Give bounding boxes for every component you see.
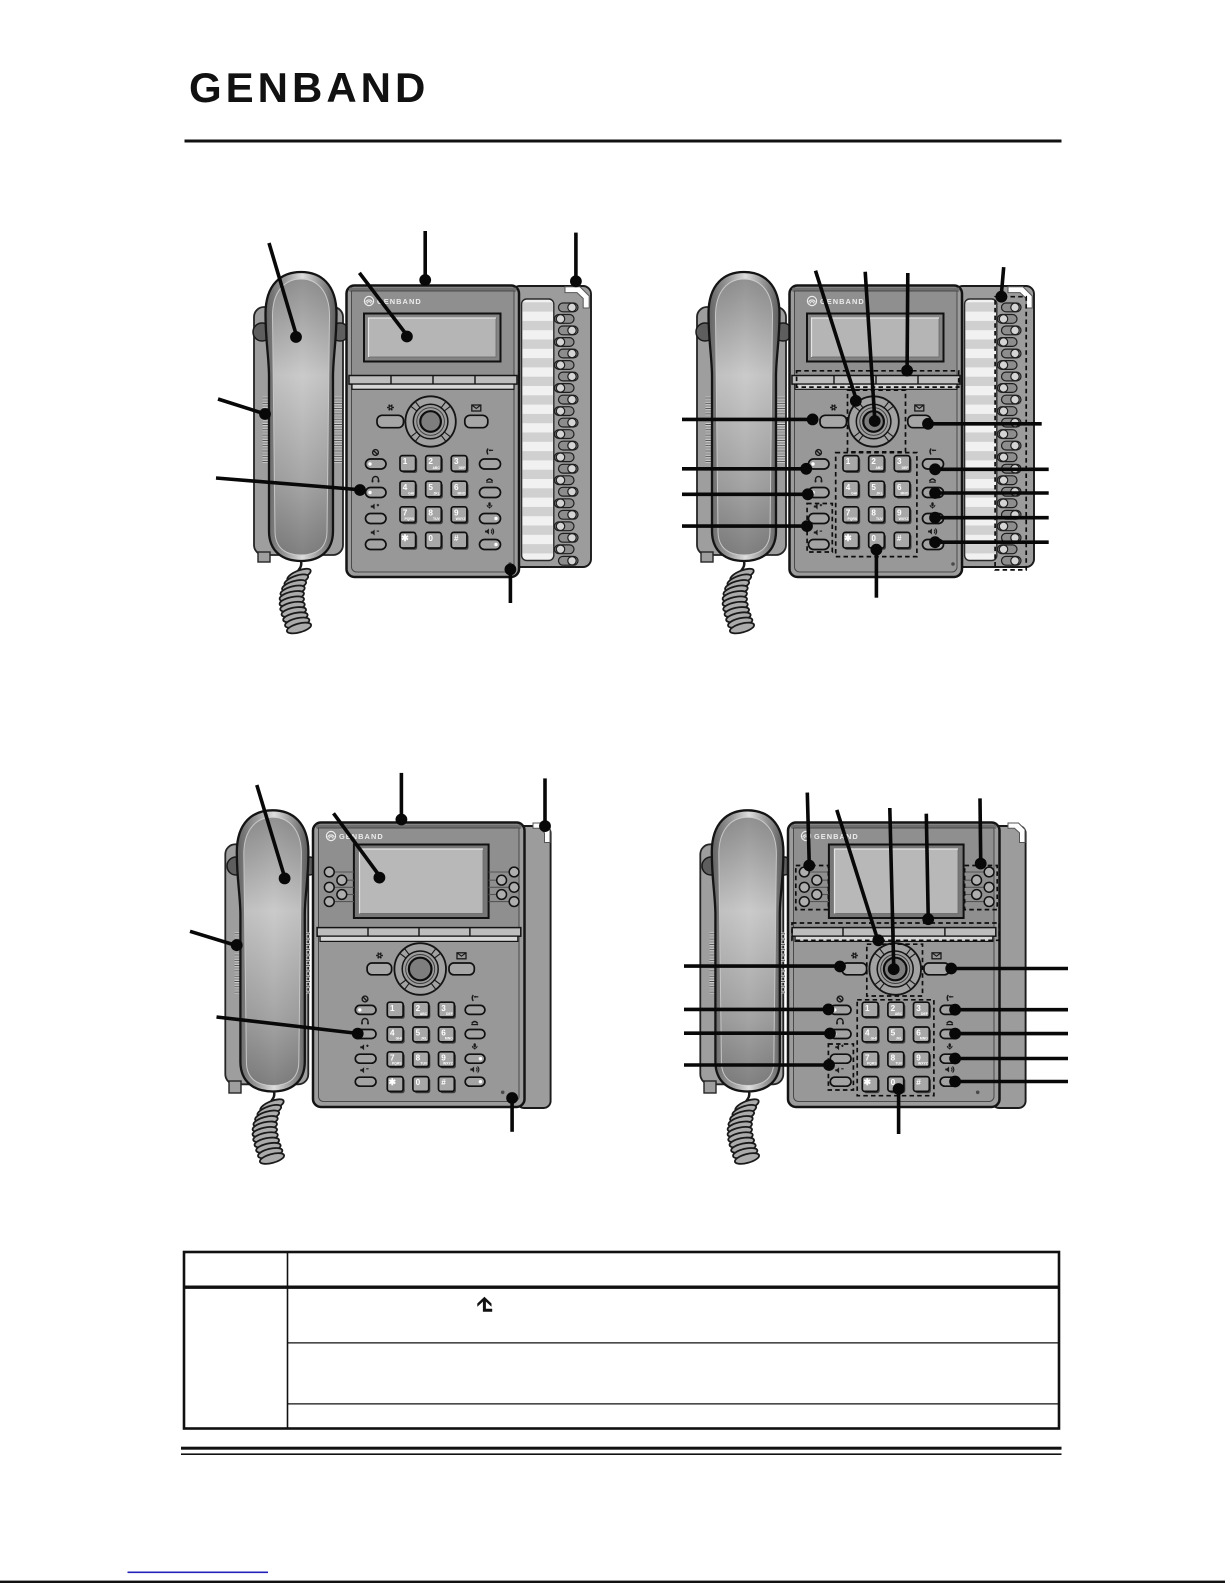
svg-text:ABC: ABC bbox=[875, 466, 883, 470]
svg-text:4: 4 bbox=[390, 1029, 395, 1038]
svg-text:TUV: TUV bbox=[876, 517, 884, 521]
svg-text:PQRS: PQRS bbox=[392, 1061, 402, 1065]
svg-text:MNO: MNO bbox=[900, 492, 908, 496]
svg-text:GENBAND: GENBAND bbox=[339, 832, 384, 841]
svg-text:DEF: DEF bbox=[446, 1012, 453, 1016]
svg-text:1: 1 bbox=[403, 457, 408, 466]
svg-text:#: # bbox=[897, 534, 902, 543]
svg-text:4: 4 bbox=[846, 483, 851, 492]
svg-text:9: 9 bbox=[454, 508, 459, 517]
svg-text:ABC: ABC bbox=[895, 1012, 903, 1016]
svg-text:WXYZ: WXYZ bbox=[918, 1061, 928, 1065]
svg-text:WXYZ: WXYZ bbox=[899, 517, 909, 521]
svg-text:✱: ✱ bbox=[389, 1077, 397, 1087]
svg-text:8: 8 bbox=[428, 508, 433, 517]
svg-text:DEF: DEF bbox=[921, 1012, 928, 1016]
svg-text:PQRS: PQRS bbox=[867, 1061, 877, 1065]
svg-text:GHI: GHI bbox=[408, 492, 414, 496]
svg-text:8: 8 bbox=[871, 508, 876, 517]
svg-text:GHI: GHI bbox=[851, 492, 857, 496]
svg-text:#: # bbox=[916, 1078, 921, 1087]
svg-text:WXYZ: WXYZ bbox=[443, 1061, 453, 1065]
svg-text:5: 5 bbox=[428, 483, 433, 492]
svg-text:TUV: TUV bbox=[895, 1061, 903, 1065]
svg-text:7: 7 bbox=[846, 508, 851, 517]
svg-text:9: 9 bbox=[897, 508, 902, 517]
svg-text:ABC: ABC bbox=[420, 1012, 428, 1016]
svg-text:1: 1 bbox=[846, 457, 851, 466]
svg-text:✱: ✱ bbox=[864, 1077, 872, 1087]
svg-text:GENBAND: GENBAND bbox=[189, 64, 429, 111]
svg-text:6: 6 bbox=[897, 483, 902, 492]
svg-text:WXYZ: WXYZ bbox=[456, 517, 466, 521]
svg-text:MNO: MNO bbox=[445, 1037, 453, 1041]
svg-text:JKL: JKL bbox=[433, 492, 439, 496]
svg-text:1: 1 bbox=[390, 1004, 395, 1013]
svg-text:6: 6 bbox=[454, 483, 459, 492]
svg-text:GHI: GHI bbox=[396, 1037, 402, 1041]
svg-text:JKL: JKL bbox=[876, 492, 882, 496]
svg-text:TUV: TUV bbox=[420, 1061, 428, 1065]
svg-text:JKL: JKL bbox=[896, 1037, 902, 1041]
svg-text:0: 0 bbox=[871, 534, 876, 543]
svg-text:JKL: JKL bbox=[421, 1037, 427, 1041]
svg-text:✱: ✱ bbox=[844, 533, 852, 543]
svg-text:GENBAND: GENBAND bbox=[814, 832, 859, 841]
svg-text:7: 7 bbox=[403, 508, 408, 517]
svg-text:4: 4 bbox=[865, 1029, 870, 1038]
svg-text:5: 5 bbox=[871, 483, 876, 492]
svg-text:GHI: GHI bbox=[871, 1037, 877, 1041]
svg-text:3: 3 bbox=[454, 457, 459, 466]
svg-text:MNO: MNO bbox=[457, 492, 465, 496]
svg-text:PQRS: PQRS bbox=[404, 517, 414, 521]
svg-text:ABC: ABC bbox=[432, 466, 440, 470]
svg-text:2: 2 bbox=[871, 457, 876, 466]
svg-text:1: 1 bbox=[865, 1004, 870, 1013]
svg-text:DEF: DEF bbox=[902, 466, 909, 470]
svg-text:#: # bbox=[454, 534, 459, 543]
svg-text:TUV: TUV bbox=[433, 517, 441, 521]
svg-text:✱: ✱ bbox=[401, 533, 409, 543]
svg-text:PQRS: PQRS bbox=[847, 517, 857, 521]
svg-text:2: 2 bbox=[428, 457, 433, 466]
svg-text:#: # bbox=[441, 1078, 446, 1087]
svg-text:4: 4 bbox=[403, 483, 408, 492]
svg-text:0: 0 bbox=[428, 534, 433, 543]
svg-text:3: 3 bbox=[897, 457, 902, 466]
svg-text:DEF: DEF bbox=[459, 466, 466, 470]
svg-text:0: 0 bbox=[416, 1078, 421, 1087]
svg-text:MNO: MNO bbox=[920, 1037, 928, 1041]
